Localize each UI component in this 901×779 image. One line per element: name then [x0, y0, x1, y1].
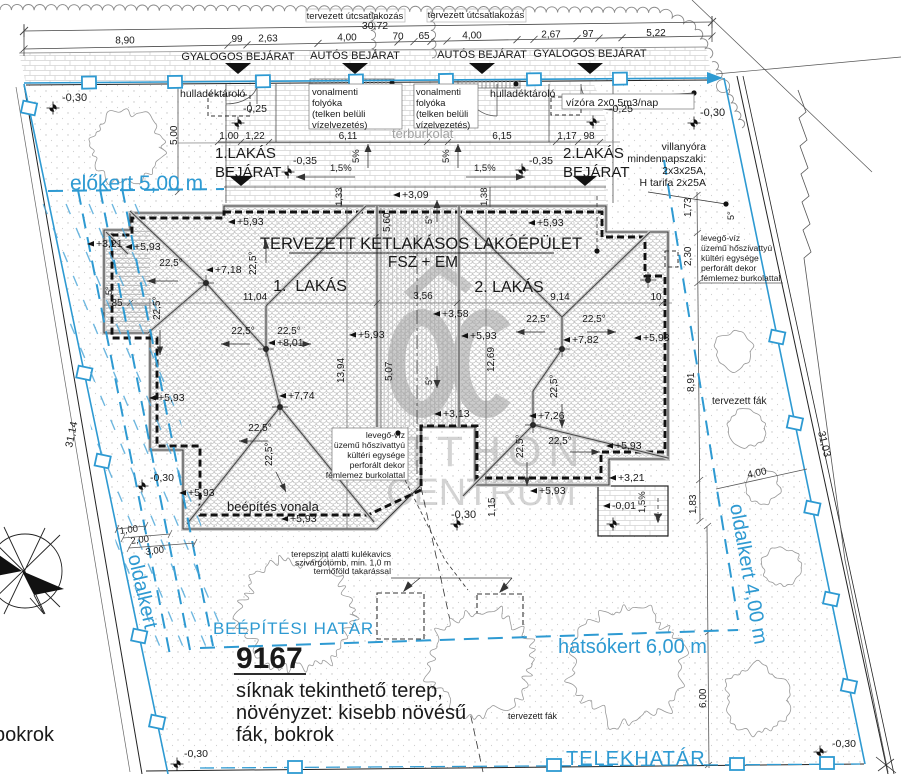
svg-text:9167: 9167 [236, 642, 303, 675]
svg-text:+5,93: +5,93 [643, 332, 670, 344]
svg-text:5,07: 5,07 [384, 361, 395, 381]
svg-text:síknak tekinthető terep,: síknak tekinthető terep, [236, 680, 443, 702]
svg-text:4,00: 4,00 [462, 30, 482, 41]
svg-text:22,5°: 22,5° [152, 297, 163, 320]
svg-text:(telken belüli: (telken belüli [416, 109, 468, 119]
svg-text:5°: 5° [424, 215, 434, 224]
svg-text:1,33: 1,33 [334, 188, 345, 207]
svg-text:TERVEZETT KÉTLAKÁSOS LAKÓÉPÜLE: TERVEZETT KÉTLAKÁSOS LAKÓÉPÜLET [260, 234, 582, 253]
svg-text:6,15: 6,15 [492, 131, 512, 142]
svg-text:22,5°: 22,5° [159, 258, 182, 269]
svg-text:vízelvezetés): vízelvezetés) [416, 120, 470, 130]
svg-text:+3,09: +3,09 [402, 189, 429, 201]
svg-text:1,73: 1,73 [683, 197, 694, 217]
svg-text:+5,93: +5,93 [537, 217, 564, 229]
svg-text:6,11: 6,11 [339, 131, 358, 142]
svg-text:+5,93: +5,93 [470, 330, 497, 342]
svg-text:-0,01: -0,01 [612, 500, 636, 512]
svg-text:1,15: 1,15 [487, 497, 498, 517]
svg-text:-0,35: -0,35 [293, 155, 317, 167]
svg-text:+5,93: +5,93 [237, 216, 264, 228]
svg-text:+7,82: +7,82 [572, 334, 599, 346]
svg-text:vízóra 2x0,5m3/nap: vízóra 2x0,5m3/nap [566, 97, 658, 109]
svg-text:+5,93: +5,93 [615, 440, 642, 452]
svg-text:4,00: 4,00 [337, 32, 357, 43]
svg-text:villanyóra: villanyóra [662, 141, 707, 153]
svg-text:+8,01: +8,01 [277, 337, 304, 349]
svg-text:31,14: 31,14 [63, 420, 80, 448]
svg-text:+3,21: +3,21 [96, 238, 123, 250]
svg-text:1,22: 1,22 [245, 131, 265, 142]
svg-text:BEJÁRAT: BEJÁRAT [563, 164, 629, 181]
svg-text:bokrok: bokrok [0, 724, 55, 746]
svg-text:H tarifa 2x25A: H tarifa 2x25A [639, 177, 706, 189]
svg-text:hátsókert 6,00 m: hátsókert 6,00 m [558, 636, 707, 658]
svg-text:-0,30: -0,30 [62, 92, 87, 104]
svg-text:5°: 5° [104, 286, 114, 295]
svg-text:22,5°: 22,5° [231, 326, 254, 337]
svg-text:+7,18: +7,18 [215, 264, 242, 276]
svg-text:12,69: 12,69 [486, 347, 497, 372]
svg-text:+3,13: +3,13 [443, 408, 470, 420]
svg-text:10: 10 [650, 292, 662, 303]
svg-text:AUTÓS BEJÁRAT: AUTÓS BEJÁRAT [310, 49, 400, 62]
svg-text:+3,58: +3,58 [442, 308, 469, 320]
svg-text:fák, bokrok: fák, bokrok [236, 724, 335, 746]
svg-text:levegő-víz: levegő-víz [366, 430, 405, 440]
svg-text:5,22: 5,22 [646, 28, 666, 39]
svg-text:1,5%: 1,5% [474, 163, 496, 174]
svg-text:+5,93: +5,93 [358, 329, 385, 341]
svg-text:vízelvezetés): vízelvezetés) [312, 120, 367, 131]
svg-text:tervezett útcsatlakozás: tervezett útcsatlakozás [307, 11, 404, 22]
svg-text:-0,30: -0,30 [184, 748, 208, 760]
svg-text:5°: 5° [424, 376, 434, 385]
svg-text:22,5°: 22,5° [548, 436, 571, 447]
svg-text:3,56: 3,56 [413, 291, 433, 302]
svg-text:2. LAKÁS: 2. LAKÁS [474, 277, 543, 296]
svg-text:1,5%: 1,5% [637, 491, 648, 513]
svg-text:5%: 5% [351, 149, 362, 163]
svg-text:levegő-víz: levegő-víz [701, 233, 740, 243]
svg-text:5°: 5° [726, 211, 736, 220]
svg-text:TELEKHATÁR: TELEKHATÁR [566, 747, 706, 770]
svg-text:13,94: 13,94 [336, 358, 347, 383]
svg-text:GYALOGOS BEJÁRAT: GYALOGOS BEJÁRAT [181, 50, 295, 63]
svg-text:1. LAKÁS: 1. LAKÁS [273, 276, 347, 295]
svg-text:1,00: 1,00 [219, 131, 239, 142]
svg-text:1,38: 1,38 [479, 188, 490, 207]
svg-text:22,5°: 22,5° [549, 375, 560, 398]
svg-text:BEJÁRAT: BEJÁRAT [215, 164, 281, 181]
svg-text:22,5°: 22,5° [582, 314, 605, 325]
svg-text:üzemű hőszivattyú: üzemű hőszivattyú [334, 440, 405, 450]
svg-text:beépítés vonala: beépítés vonala [227, 499, 320, 514]
svg-text:70: 70 [392, 32, 404, 43]
svg-text:2,67: 2,67 [541, 29, 561, 40]
svg-text:5%: 5% [441, 149, 452, 163]
svg-text:85: 85 [111, 298, 123, 309]
svg-text:folyóka: folyóka [312, 98, 343, 109]
svg-text:22,5°: 22,5° [248, 423, 271, 434]
svg-text:üzemű hőszivattyú: üzemű hőszivattyú [701, 243, 772, 253]
svg-text:kültéri egysége: kültéri egysége [347, 450, 405, 460]
svg-text:hulladéktároló: hulladéktároló [180, 88, 246, 100]
svg-text:65: 65 [418, 31, 430, 42]
svg-text:2x3x25A,: 2x3x25A, [662, 165, 706, 177]
svg-text:+5,93: +5,93 [188, 487, 215, 499]
svg-text:30,72: 30,72 [362, 20, 388, 32]
svg-text:növényzet: kisebb növésű: növényzet: kisebb növésű [236, 702, 466, 724]
svg-text:előkert 5,00 m: előkert 5,00 m [70, 172, 203, 195]
svg-text:22,5°: 22,5° [277, 326, 300, 337]
svg-text:hulladéktároló: hulladéktároló [490, 88, 556, 100]
svg-text:+7,74: +7,74 [288, 390, 315, 402]
svg-text:fémlemez burkolattal: fémlemez burkolattal [701, 273, 780, 283]
svg-text:22,5°: 22,5° [526, 314, 549, 325]
svg-text:-0,30: -0,30 [451, 509, 476, 521]
svg-text:8,91: 8,91 [686, 372, 697, 392]
svg-text:-0,30: -0,30 [700, 107, 725, 119]
svg-text:-0,35: -0,35 [529, 155, 553, 167]
svg-text:22,5°: 22,5° [264, 443, 275, 466]
svg-text:5,00: 5,00 [169, 125, 180, 145]
svg-text:-0,25: -0,25 [243, 103, 267, 115]
svg-text:vonalmenti: vonalmenti [416, 87, 461, 97]
svg-text:GYALOGOS BEJÁRAT: GYALOGOS BEJÁRAT [533, 47, 647, 60]
svg-text:tervezett fák: tervezett fák [508, 711, 558, 721]
svg-text:22,5°: 22,5° [515, 435, 526, 458]
svg-text:+5,93: +5,93 [290, 513, 317, 525]
svg-text:vonalmenti: vonalmenti [312, 87, 358, 98]
svg-text:termőföld takarással: termőföld takarással [314, 566, 391, 576]
svg-text:(telken belüli: (telken belüli [312, 109, 365, 120]
svg-text:BEÉPÍTÉSI HATÁR: BEÉPÍTÉSI HATÁR [213, 619, 374, 638]
svg-text:1,83: 1,83 [688, 494, 699, 514]
svg-text:+3,21: +3,21 [618, 472, 645, 484]
svg-text:+5,93: +5,93 [158, 392, 185, 404]
svg-text:5,60: 5,60 [382, 212, 393, 232]
svg-text:-0,30: -0,30 [832, 738, 856, 750]
svg-text:22,5°: 22,5° [248, 252, 259, 275]
svg-text:99: 99 [231, 34, 243, 45]
svg-text:6,00: 6,00 [698, 688, 709, 708]
svg-text:1.LAKÁS: 1.LAKÁS [215, 145, 276, 162]
svg-text:97: 97 [582, 29, 594, 40]
svg-text:9,14: 9,14 [550, 292, 570, 303]
svg-text:tervezett fák: tervezett fák [712, 396, 767, 407]
svg-text:31,03: 31,03 [815, 430, 833, 459]
svg-text:FSZ + EM: FSZ + EM [388, 254, 458, 271]
svg-text:2,30: 2,30 [683, 246, 694, 266]
svg-text:mindennapszaki:: mindennapszaki: [627, 153, 706, 165]
svg-text:2.LAKÁS: 2.LAKÁS [563, 145, 624, 162]
svg-text:+5,93: +5,93 [134, 241, 161, 253]
svg-text:11,04: 11,04 [243, 292, 268, 303]
svg-text:2,63: 2,63 [258, 33, 278, 44]
svg-text:tervezett útcsatlakozás: tervezett útcsatlakozás [428, 10, 525, 21]
svg-text:fémlemez burkolattal: fémlemez burkolattal [326, 470, 405, 480]
svg-text:folyóka: folyóka [416, 98, 446, 108]
svg-text:1,17: 1,17 [557, 131, 577, 142]
svg-text:98: 98 [583, 131, 595, 142]
svg-text:perforált dekor: perforált dekor [701, 263, 757, 273]
svg-text:kültéri egysége: kültéri egysége [701, 253, 759, 263]
svg-text:1,5%: 1,5% [330, 163, 352, 174]
svg-text:AUTÓS BEJÁRAT: AUTÓS BEJÁRAT [437, 48, 527, 61]
svg-text:8,90: 8,90 [115, 36, 135, 47]
svg-text:perforált dekor: perforált dekor [350, 460, 406, 470]
svg-text:+5,93: +5,93 [539, 485, 566, 497]
svg-text:-0,30: -0,30 [150, 472, 174, 484]
